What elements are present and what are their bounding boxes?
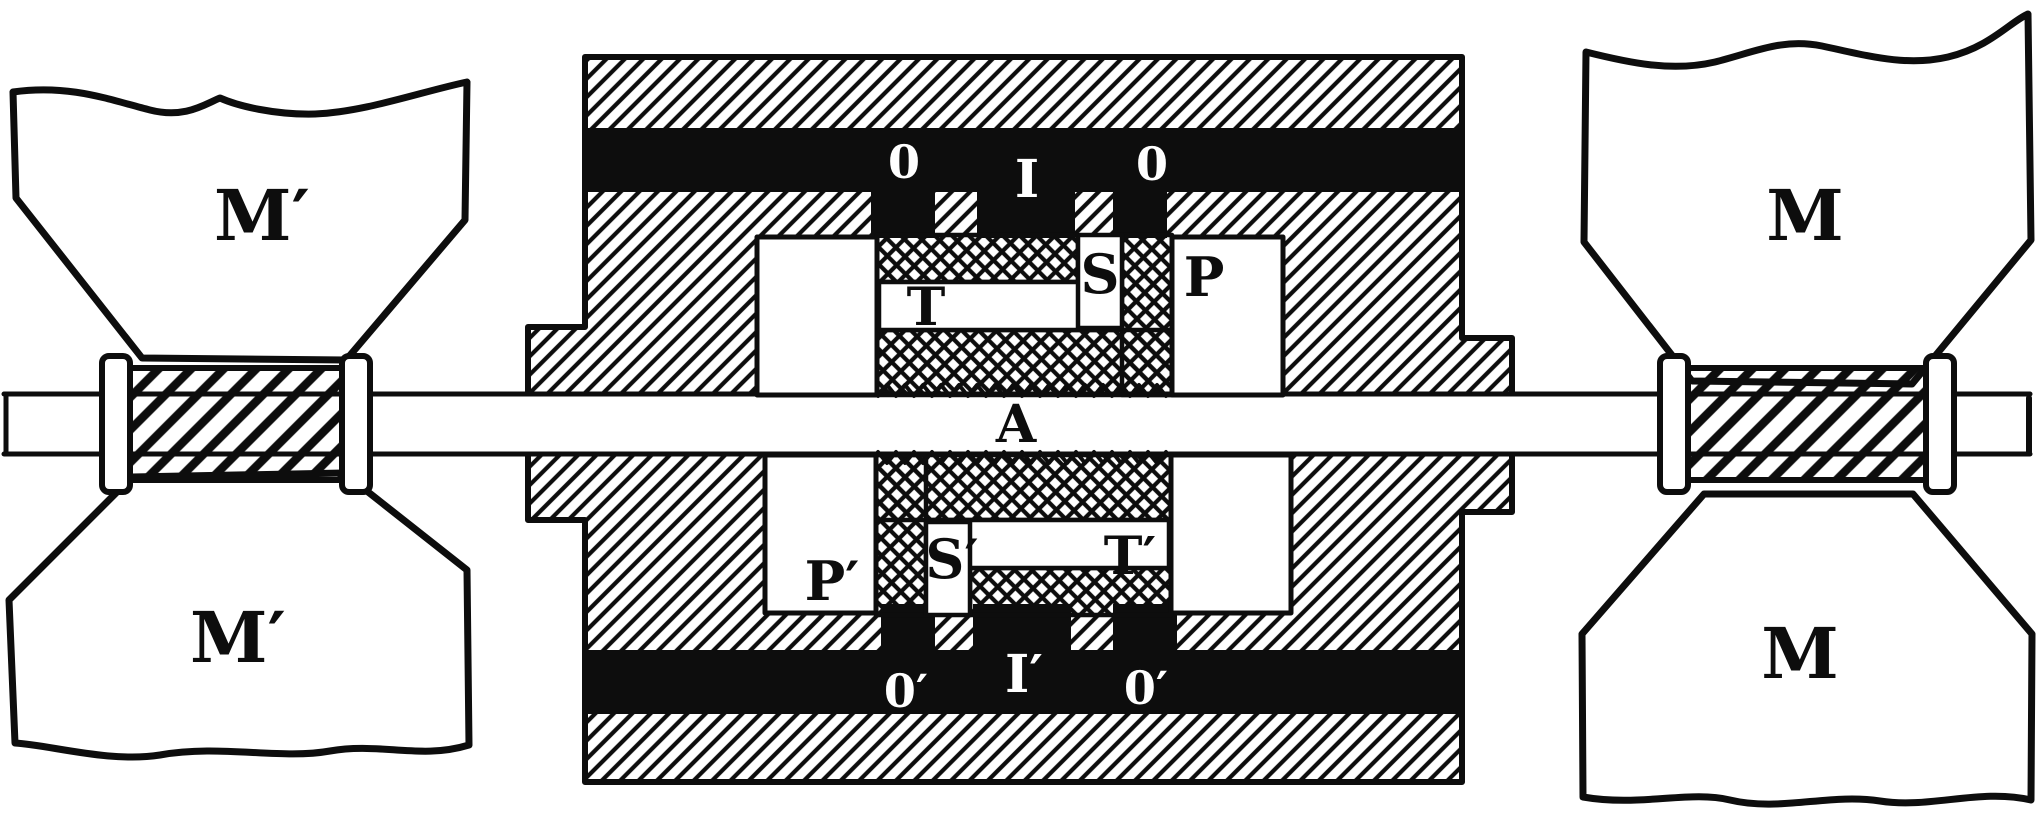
label-t-bottom: T′ xyxy=(1104,526,1156,587)
bushing-right xyxy=(1660,356,1954,492)
pole-label-top-left: M′ xyxy=(214,174,310,257)
pole-label-bottom-left: M′ xyxy=(190,596,286,679)
coil-label-top-left: 0 xyxy=(888,135,920,189)
engraving-figure: M′ M′ M M 0 I 0 0′ I′ 0′ xyxy=(0,0,2044,826)
bushing-right-flange-left xyxy=(1660,356,1688,492)
coil-label-bottom-center: I′ xyxy=(1005,644,1043,705)
bushing-left-flange-right xyxy=(342,356,370,492)
coil-label-bottom-left: 0′ xyxy=(884,664,928,718)
label-p-top: P xyxy=(1184,245,1225,309)
core-top-bar xyxy=(877,235,1078,282)
cavity-top-left xyxy=(757,237,877,395)
cavity-bottom-right xyxy=(1171,455,1291,613)
label-s-top: S xyxy=(1081,242,1120,306)
coil-label-top-center: I xyxy=(1015,149,1039,210)
core-bottom-base xyxy=(876,455,1171,520)
label-a-shaft: A xyxy=(995,394,1037,455)
pole-label-top-right: M xyxy=(1766,174,1844,257)
label-t-top: T xyxy=(907,277,946,338)
label-p-bottom: P′ xyxy=(805,549,860,613)
coil-label-bottom-right: 0′ xyxy=(1124,661,1168,715)
bushing-right-cylinder xyxy=(1688,368,1926,480)
bushing-left-cylinder xyxy=(130,368,342,480)
label-s-bottom: S′ xyxy=(925,527,978,591)
bushing-left-flange-left xyxy=(102,356,130,492)
pole-label-bottom-right: M xyxy=(1761,612,1839,695)
figure-canvas: M′ M′ M M 0 I 0 0′ I′ 0′ xyxy=(0,0,2044,826)
coil-label-top-right: 0 xyxy=(1136,137,1168,191)
bushing-right-flange-right xyxy=(1926,356,1954,492)
bushing-left xyxy=(102,356,370,492)
